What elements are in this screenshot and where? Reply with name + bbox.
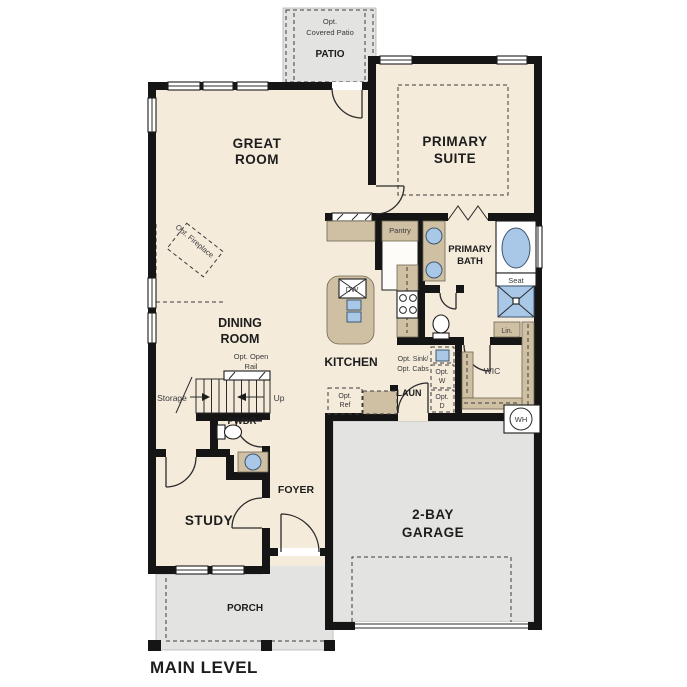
open-rail-label: Opt. Open	[234, 352, 269, 361]
kitchen-label: KITCHEN	[324, 355, 377, 369]
primary-suite-label2: SUITE	[434, 151, 476, 166]
open-rail	[224, 371, 270, 380]
garage-label2: GARAGE	[402, 525, 464, 540]
dining-label2: ROOM	[221, 332, 260, 346]
opt-washer-label: Opt.	[435, 369, 448, 376]
great-room-window	[168, 82, 200, 90]
wic-label: WIC	[484, 366, 501, 376]
pwdr-sink-fixture	[238, 452, 268, 472]
great-room-window	[237, 82, 268, 90]
vanity-sink-fixture	[426, 262, 442, 278]
primary-bath-label2: BATH	[457, 256, 483, 267]
left-wall-window	[148, 278, 156, 308]
opt-ref-label2: Ref	[340, 402, 351, 409]
patio-opt-label: Opt.	[323, 17, 337, 26]
great-room-label2: ROOM	[235, 152, 279, 167]
foyer-label: FOYER	[278, 484, 315, 496]
kitchen-counter	[327, 221, 375, 241]
opt-sink-label: Opt. Sink/	[398, 356, 429, 363]
primary-bath-label: PRIMARY	[448, 244, 492, 255]
great-room-window	[203, 82, 233, 90]
vanity-sink-fixture	[426, 228, 442, 244]
laundry-label: LAUN	[397, 388, 422, 398]
opt-sink-label2: Opt. Cabs	[397, 366, 429, 373]
opt-dryer-label2: D	[439, 403, 444, 410]
dining-label: DINING	[218, 316, 262, 330]
study-window	[176, 566, 208, 574]
opt-ref-label: Opt.	[338, 393, 351, 400]
range-fixture	[397, 291, 418, 318]
opt-dryer-label: Opt.	[435, 394, 448, 401]
water-heater-label: WH	[515, 415, 528, 424]
shower-fixture	[498, 286, 534, 317]
patio-opt-label2: Covered Patio	[306, 28, 354, 37]
left-wall-window	[148, 313, 156, 343]
study-label: STUDY	[185, 513, 233, 528]
toilet-fixture	[217, 425, 242, 439]
left-wall-window	[148, 98, 156, 132]
garage-label: 2-BAY	[412, 507, 454, 522]
pwdr-label: PWDR	[227, 416, 256, 427]
opt-washer-label2: W	[439, 378, 446, 385]
seat-label: Seat	[508, 276, 524, 285]
suite-window	[497, 56, 527, 64]
dishwasher-label: DW	[346, 285, 359, 294]
storage-label: Storage	[157, 393, 187, 403]
study-window	[212, 566, 244, 574]
floor-plan-svg: Opt. Covered Patio PATIO GREAT ROOM PRIM…	[0, 0, 687, 687]
up-label: Up	[274, 393, 285, 403]
kitchen-pass-window	[332, 213, 372, 221]
linen-label: Lin.	[501, 328, 512, 335]
primary-suite-label: PRIMARY	[422, 134, 487, 149]
opt-counter	[363, 391, 397, 414]
pantry-label: Pantry	[389, 226, 411, 235]
vanity-counter	[423, 221, 445, 281]
porch-label: PORCH	[227, 603, 263, 614]
toilet-fixture	[433, 315, 449, 339]
bathtub-fixture	[496, 221, 536, 273]
floor-plan-page: Opt. Covered Patio PATIO GREAT ROOM PRIM…	[0, 0, 687, 687]
patio-label: PATIO	[315, 49, 344, 60]
suite-window	[380, 56, 412, 64]
plan-title: MAIN LEVEL	[150, 658, 258, 677]
open-rail-label2: Rail	[245, 362, 258, 371]
great-room-label: GREAT	[233, 136, 282, 151]
